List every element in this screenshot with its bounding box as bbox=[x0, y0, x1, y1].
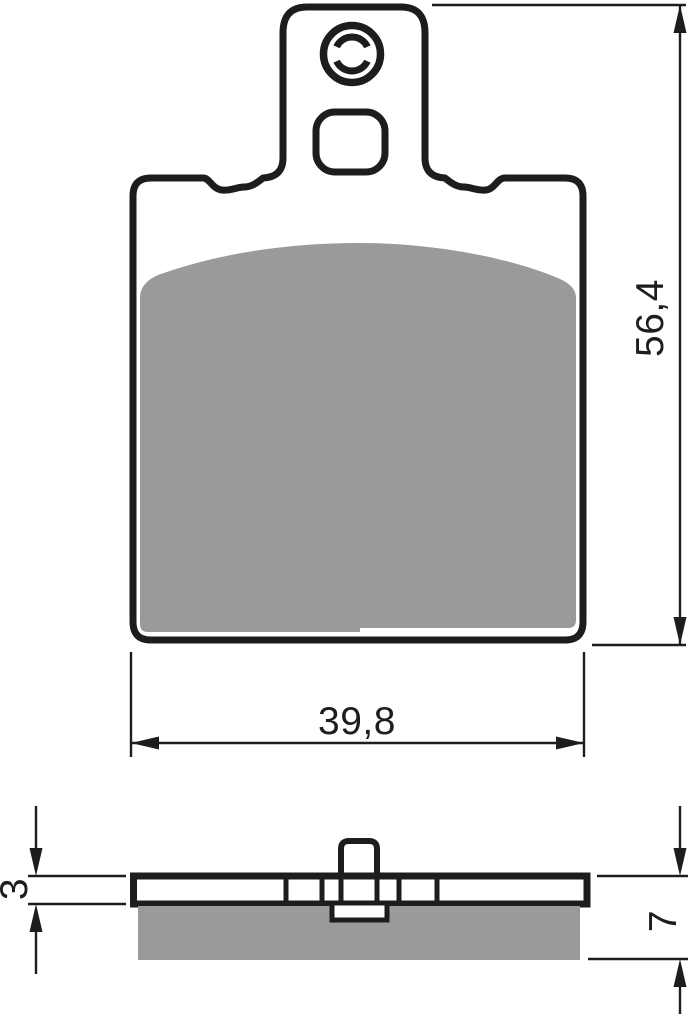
width-dim-arrow-left bbox=[131, 737, 159, 750]
width-dim-label: 39,8 bbox=[318, 700, 396, 743]
width-dimension: 39,8 bbox=[131, 652, 584, 757]
plate-dim-arrow-down bbox=[30, 848, 43, 876]
total-dim-arrow-down bbox=[674, 848, 687, 876]
height-dim-arrow-up bbox=[674, 5, 687, 33]
friction-notch bbox=[332, 903, 387, 920]
height-dim-arrow-down bbox=[674, 617, 687, 645]
side-view-center-nub bbox=[341, 841, 377, 878]
front-view bbox=[133, 7, 583, 640]
total-dim-label: 7 bbox=[642, 910, 685, 932]
width-dim-arrow-right bbox=[556, 737, 584, 750]
technical-drawing-page: 56,4 39,8 bbox=[0, 0, 689, 1024]
height-dim-label: 56,4 bbox=[629, 279, 672, 357]
plate-dim-arrow-up bbox=[30, 904, 43, 932]
friction-material-front bbox=[140, 243, 576, 632]
plate-dim-label: 3 bbox=[0, 878, 36, 900]
brake-pad-drawing: 56,4 39,8 bbox=[0, 0, 689, 1024]
total-thickness-dimension: 7 bbox=[588, 806, 688, 1014]
side-view bbox=[134, 841, 588, 960]
backing-plate-side bbox=[134, 876, 588, 904]
plate-thickness-dimension: 3 bbox=[0, 806, 126, 974]
total-dim-arrow-up bbox=[674, 959, 687, 987]
